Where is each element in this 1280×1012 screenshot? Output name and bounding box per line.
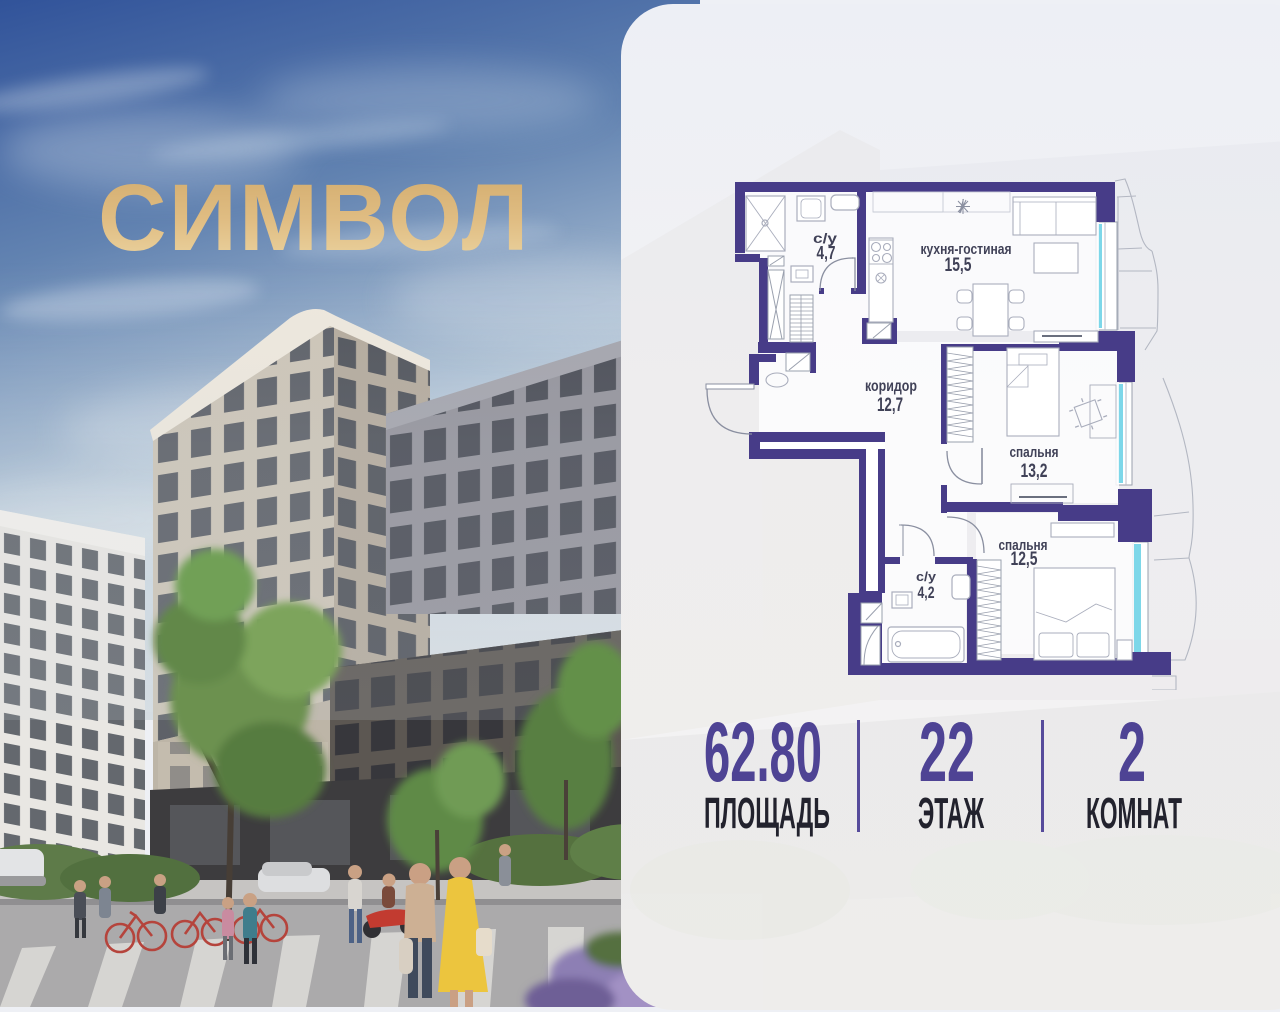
svg-text:62.80: 62.80 [704, 705, 822, 799]
svg-text:с/у: с/у [916, 569, 937, 584]
svg-text:13,2: 13,2 [1021, 461, 1048, 482]
svg-text:коридор: коридор [865, 378, 917, 395]
svg-text:ЭТАЖ: ЭТАЖ [918, 789, 984, 838]
svg-text:ПЛОЩАДЬ: ПЛОЩАДЬ [704, 789, 830, 838]
svg-text:4,7: 4,7 [817, 243, 836, 263]
svg-text:12,5: 12,5 [1011, 549, 1038, 570]
svg-text:4,2: 4,2 [918, 583, 935, 602]
svg-text:2: 2 [1118, 705, 1146, 799]
svg-text:15,5: 15,5 [945, 255, 972, 276]
svg-text:спальня: спальня [1010, 444, 1059, 461]
svg-text:КОМНАТ: КОМНАТ [1086, 789, 1182, 838]
svg-text:22: 22 [919, 705, 975, 799]
svg-text:12,7: 12,7 [877, 395, 903, 416]
